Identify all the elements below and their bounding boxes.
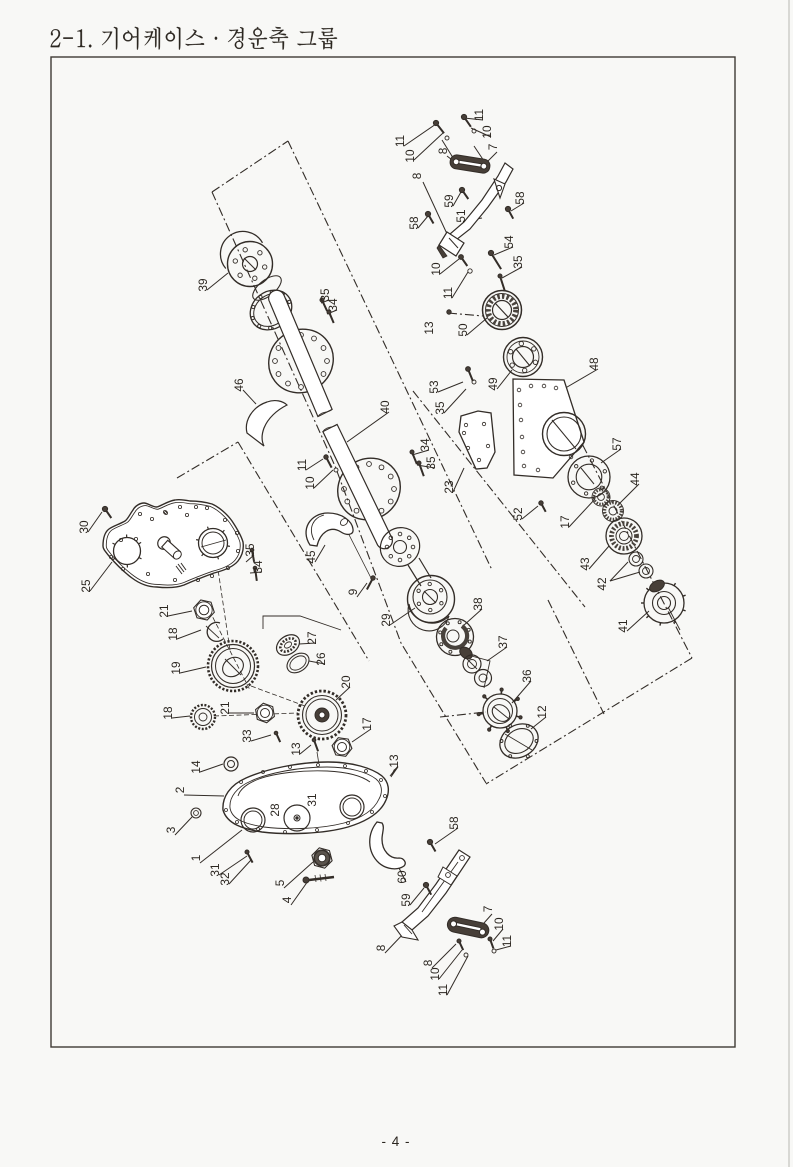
svg-text:26: 26 bbox=[314, 652, 328, 666]
svg-text:12: 12 bbox=[535, 705, 549, 718]
svg-text:49: 49 bbox=[486, 377, 500, 390]
svg-text:8: 8 bbox=[421, 959, 435, 966]
svg-text:14: 14 bbox=[189, 760, 203, 774]
svg-text:57: 57 bbox=[610, 437, 624, 450]
svg-text:43: 43 bbox=[578, 557, 592, 571]
svg-text:39: 39 bbox=[196, 278, 210, 291]
svg-text:10: 10 bbox=[428, 967, 442, 981]
svg-text:10: 10 bbox=[429, 262, 443, 276]
svg-text:35: 35 bbox=[243, 543, 257, 557]
svg-text:35: 35 bbox=[433, 401, 447, 415]
svg-text:11: 11 bbox=[436, 984, 450, 996]
svg-text:59: 59 bbox=[399, 893, 413, 906]
svg-text:8: 8 bbox=[410, 172, 424, 179]
svg-text:35: 35 bbox=[511, 255, 525, 269]
svg-text:28: 28 bbox=[268, 803, 282, 817]
svg-text:17: 17 bbox=[360, 717, 374, 730]
svg-text:46: 46 bbox=[232, 378, 246, 392]
svg-text:10: 10 bbox=[480, 125, 494, 139]
svg-text:7: 7 bbox=[486, 144, 500, 151]
svg-text:9: 9 bbox=[346, 589, 360, 596]
svg-text:41: 41 bbox=[616, 619, 630, 632]
svg-text:2: 2 bbox=[173, 787, 187, 794]
svg-text:50: 50 bbox=[456, 323, 470, 337]
svg-text:11: 11 bbox=[500, 935, 514, 947]
svg-text:44: 44 bbox=[628, 472, 642, 486]
svg-text:5: 5 bbox=[273, 879, 287, 886]
svg-text:8: 8 bbox=[374, 944, 388, 951]
svg-text:35: 35 bbox=[424, 456, 438, 470]
svg-text:7: 7 bbox=[481, 906, 495, 913]
svg-text:3: 3 bbox=[164, 826, 178, 833]
svg-text:45: 45 bbox=[304, 550, 318, 564]
svg-text:13: 13 bbox=[422, 321, 436, 335]
svg-text:11: 11 bbox=[295, 459, 309, 471]
svg-text:8: 8 bbox=[436, 147, 450, 154]
svg-text:1: 1 bbox=[189, 855, 203, 862]
svg-text:17: 17 bbox=[558, 515, 572, 528]
svg-text:11: 11 bbox=[472, 109, 486, 121]
svg-text:11: 11 bbox=[393, 135, 407, 147]
svg-text:27: 27 bbox=[305, 631, 319, 644]
svg-text:13: 13 bbox=[387, 754, 401, 768]
svg-text:10: 10 bbox=[492, 917, 506, 931]
svg-text:58: 58 bbox=[513, 191, 527, 205]
svg-text:54: 54 bbox=[502, 235, 516, 249]
svg-text:11: 11 bbox=[441, 287, 455, 299]
svg-text:48: 48 bbox=[587, 357, 601, 371]
svg-text:32: 32 bbox=[218, 872, 232, 885]
svg-text:58: 58 bbox=[447, 816, 461, 830]
svg-text:31: 31 bbox=[305, 793, 319, 806]
svg-text:20: 20 bbox=[339, 675, 353, 689]
svg-text:21: 21 bbox=[157, 604, 171, 617]
svg-text:36: 36 bbox=[520, 669, 534, 683]
svg-text:30: 30 bbox=[77, 520, 91, 534]
svg-text:34: 34 bbox=[418, 438, 432, 452]
svg-text:18: 18 bbox=[161, 706, 175, 720]
svg-text:21: 21 bbox=[218, 701, 232, 714]
svg-text:38: 38 bbox=[471, 597, 485, 611]
svg-text:60: 60 bbox=[395, 870, 409, 884]
svg-text:40: 40 bbox=[378, 400, 392, 414]
svg-text:10: 10 bbox=[403, 149, 417, 163]
svg-text:23: 23 bbox=[442, 480, 456, 494]
svg-text:29: 29 bbox=[379, 613, 393, 626]
svg-text:53: 53 bbox=[427, 380, 441, 394]
svg-text:- 4 -: - 4 - bbox=[381, 1134, 410, 1149]
svg-text:13: 13 bbox=[289, 742, 303, 756]
svg-text:58: 58 bbox=[407, 216, 421, 230]
svg-text:10: 10 bbox=[303, 476, 317, 490]
svg-text:25: 25 bbox=[79, 579, 93, 593]
svg-text:18: 18 bbox=[166, 627, 180, 641]
svg-text:34: 34 bbox=[326, 298, 340, 312]
svg-text:33: 33 bbox=[240, 729, 254, 743]
svg-text:4: 4 bbox=[280, 896, 294, 903]
svg-text:34: 34 bbox=[251, 560, 265, 574]
svg-text:59: 59 bbox=[442, 194, 456, 207]
svg-text:52: 52 bbox=[511, 507, 525, 520]
svg-text:51: 51 bbox=[454, 209, 468, 222]
svg-text:19: 19 bbox=[169, 661, 183, 674]
svg-text:37: 37 bbox=[496, 635, 510, 648]
svg-text:42: 42 bbox=[595, 577, 609, 590]
